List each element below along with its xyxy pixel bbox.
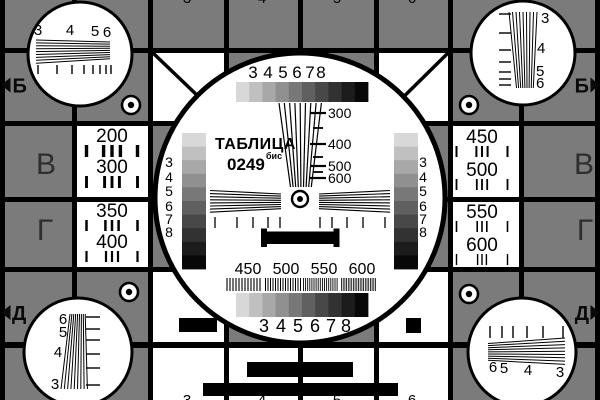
column-digit: 4 — [258, 392, 266, 400]
wedge-number: 3 — [34, 22, 42, 39]
wedge-number: 4 — [537, 40, 545, 57]
frequency-label: 600 — [328, 170, 352, 186]
scale-number: 8 — [316, 63, 325, 82]
scale-number: 6 — [310, 316, 320, 336]
row-letter: Б — [13, 76, 27, 98]
row-letter: Г — [37, 214, 53, 247]
scale-number: 7 — [326, 316, 336, 336]
wedge-number: 5 — [500, 360, 508, 377]
grayscale-bar-left — [182, 133, 206, 269]
bullseye-target-icon — [120, 283, 138, 301]
card-number: 0249 — [227, 155, 265, 174]
definition-number: 200 — [96, 126, 128, 147]
scale-number: 5 — [293, 316, 303, 336]
black-bar-short — [247, 362, 353, 377]
test-card: 3 4 5 6 3 4 5 6 6 5 4 3 6 5 4 3 3 — [0, 0, 600, 400]
grayscale-bar-top — [236, 82, 368, 102]
wedge-number: 4 — [66, 22, 74, 39]
wedge-number: 3 — [541, 10, 549, 27]
definition-number: 400 — [96, 232, 128, 253]
definition-number: 350 — [96, 201, 128, 222]
column-digit: 3 — [183, 392, 191, 400]
wedge-number: 6 — [536, 75, 544, 92]
corner-circle-top-right: 3 4 5 6 — [471, 1, 575, 105]
bar-number: 5 — [165, 183, 173, 199]
definition-number: 450 — [466, 127, 498, 148]
burst-label: 600 — [349, 261, 376, 278]
definition-number: 600 — [466, 235, 498, 256]
bullseye-target-icon — [460, 96, 478, 114]
corner-circle-bottom-left: 6 5 4 3 — [24, 298, 132, 400]
frequency-label: 400 — [328, 136, 352, 152]
scale-number: 4 — [263, 63, 272, 82]
bar-number: 5 — [419, 183, 427, 199]
row-letter: Д — [12, 303, 26, 325]
column-digit: 5 — [333, 0, 341, 7]
column-digit: 4 — [258, 0, 266, 7]
bullseye-target-icon — [460, 285, 478, 303]
bar-number: 3 — [165, 154, 173, 170]
wedge-number: 3 — [51, 376, 59, 393]
scale-number: 8 — [341, 316, 351, 336]
wedge-number: 5 — [59, 324, 67, 341]
row-letter: Г — [577, 214, 593, 247]
bar-number: 3 — [419, 154, 427, 170]
reflection-mark-right — [406, 318, 421, 333]
bar-number: 8 — [165, 224, 173, 240]
column-digit: 6 — [408, 0, 416, 7]
wedge-number: 4 — [524, 362, 532, 379]
wedge-number: 3 — [556, 364, 564, 381]
burst-label: 450 — [235, 261, 262, 278]
row-letter: Д — [575, 303, 589, 325]
definition-number: 500 — [466, 160, 498, 181]
scale-number: 3 — [248, 63, 257, 82]
wedge-number: 6 — [489, 359, 497, 376]
row-letter: В — [574, 148, 594, 181]
wedge-number: 5 — [91, 23, 99, 40]
card-title: ТАБЛИЦА — [215, 136, 296, 153]
row-letter: Б — [575, 76, 589, 98]
frequency-scale-labels: 300 400 500 600 — [328, 105, 352, 186]
scale-number: 5 — [278, 63, 287, 82]
bullseye-target-icon — [292, 191, 308, 207]
right-bar-numbers: 3 4 5 6 7 8 — [419, 154, 427, 240]
burst-label: 500 — [273, 261, 300, 278]
column-digit: 6 — [408, 392, 416, 400]
card-number-suffix: бис — [266, 151, 282, 161]
burst-label: 550 — [311, 261, 338, 278]
scale-number: 3 — [259, 316, 269, 336]
definition-number: 550 — [466, 202, 498, 223]
black-bar-long — [203, 383, 398, 396]
row-letter: В — [36, 148, 56, 181]
scale-number: 7 — [305, 63, 314, 82]
column-digit: 5 — [333, 392, 341, 400]
scale-number: 6 — [292, 63, 301, 82]
grayscale-bar-right — [394, 133, 418, 269]
bar-number: 8 — [419, 224, 427, 240]
wedge-number: 4 — [54, 344, 62, 361]
reflection-mark-left — [179, 318, 217, 332]
definition-number: 300 — [96, 157, 128, 178]
scale-number: 4 — [276, 316, 286, 336]
wedge-number: 6 — [103, 24, 111, 41]
corner-circle-top-left: 3 4 5 6 — [28, 2, 132, 106]
left-bar-numbers: 3 4 5 6 7 8 — [165, 154, 173, 240]
grayscale-bar-bottom — [236, 293, 368, 317]
frequency-label: 300 — [328, 105, 352, 121]
corner-circle-bottom-right: 6 5 4 3 — [468, 298, 576, 400]
column-digit: 3 — [183, 0, 191, 7]
bullseye-target-icon — [122, 96, 140, 114]
